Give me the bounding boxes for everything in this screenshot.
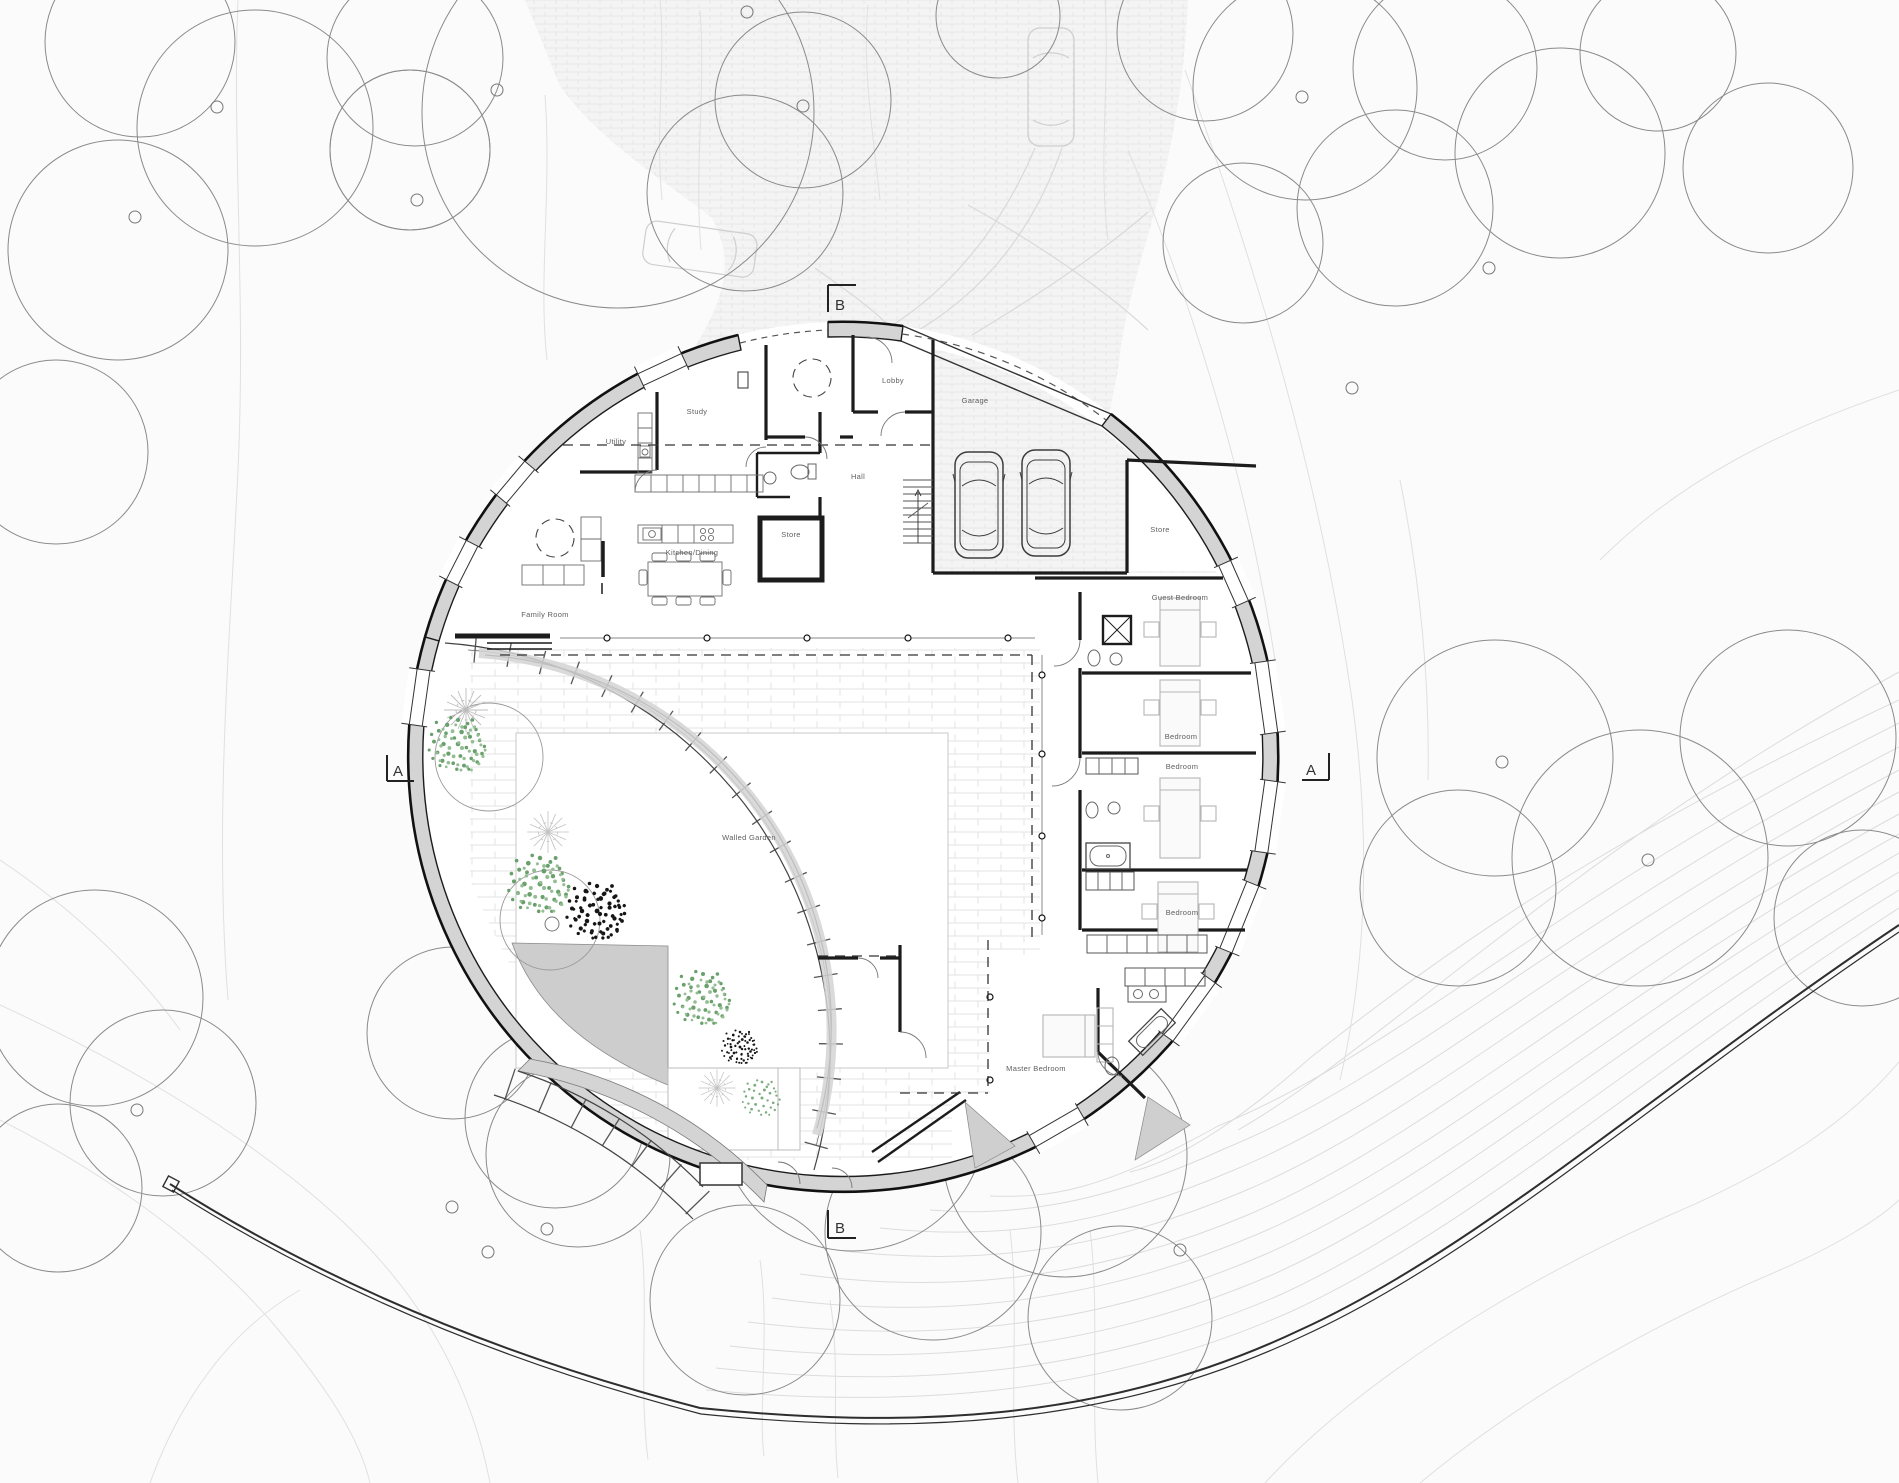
floor-plan-canvas: Study Utility Lobby Garage Hall Store St… (0, 0, 1899, 1483)
store-room-left (760, 518, 822, 580)
site-plan-drawing: Study Utility Lobby Garage Hall Store St… (0, 0, 1899, 1483)
room-label-walled-garden: Walled Garden (722, 833, 776, 842)
section-letter-b-bottom: B (835, 1220, 845, 1237)
section-letter-a-right: A (1306, 762, 1316, 779)
room-label-store-right: Store (1150, 525, 1169, 534)
room-label-garage: Garage (962, 396, 989, 405)
room-label-kitchen-dining: Kitchen/Dining (666, 548, 719, 557)
room-label-store-left: Store (781, 530, 800, 539)
garden-gate-step (700, 1163, 742, 1185)
room-label-study: Study (687, 407, 708, 416)
room-label-utility: Utility (606, 437, 626, 446)
section-marker-a-right: A (1302, 753, 1329, 780)
room-label-bedroom-3: Bedroom (1166, 908, 1199, 917)
room-label-hall: Hall (851, 472, 865, 481)
room-label-family-room: Family Room (521, 610, 568, 619)
room-label-bedroom-2: Bedroom (1166, 762, 1199, 771)
circular-house: Study Utility Lobby Garage Hall Store St… (401, 322, 1285, 1219)
section-letter-b-top: B (835, 297, 845, 314)
room-label-master-bedroom: Master Bedroom (1006, 1064, 1066, 1073)
section-letter-a-left: A (393, 763, 403, 780)
section-marker-b-bottom: B (828, 1210, 856, 1238)
room-label-lobby: Lobby (882, 376, 904, 385)
room-label-bedroom-1: Bedroom (1165, 732, 1198, 741)
room-label-guest-bedroom: Guest Bedroom (1152, 593, 1208, 602)
